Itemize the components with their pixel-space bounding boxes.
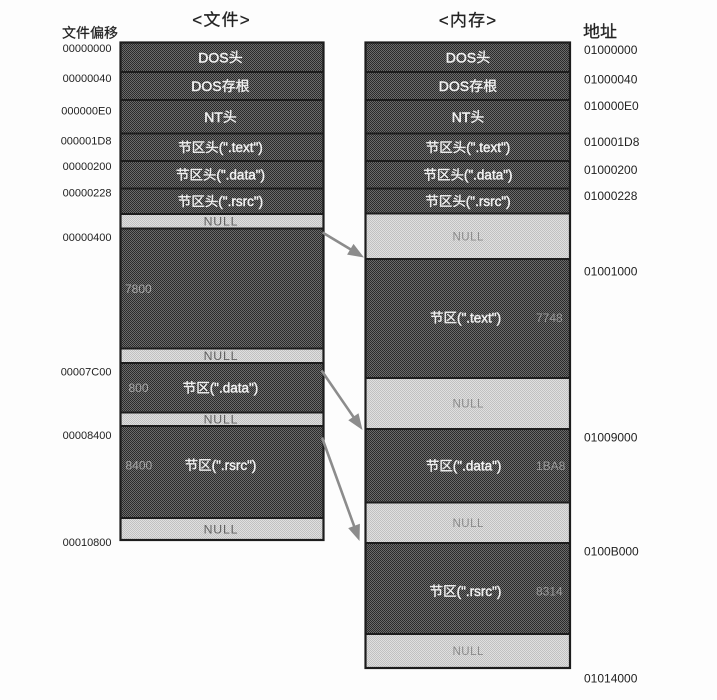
svg-text:DOS: DOS [446,49,476,65]
svg-text:(".rsrc"): (".rsrc") [212,458,257,473]
svg-text:(".data"): (".data") [464,168,513,183]
svg-text:01000228: 01000228 [584,189,638,203]
svg-text:NT: NT [204,109,223,125]
svg-text:01000040: 01000040 [584,72,638,86]
svg-text:NULL: NULL [453,231,485,243]
svg-text:NULL: NULL [204,413,239,427]
svg-text:00010800: 00010800 [63,537,112,549]
svg-text:(".rsrc"): (".rsrc") [218,194,263,209]
svg-text:NULL: NULL [453,646,485,658]
svg-text:DOS: DOS [439,78,469,94]
svg-text:00007C00: 00007C00 [61,367,112,379]
svg-text:010000E0: 010000E0 [584,99,639,113]
svg-text:NULL: NULL [204,215,239,229]
svg-text:NULL: NULL [204,522,239,536]
svg-text:00000228: 00000228 [63,188,112,200]
svg-text:01000200: 01000200 [584,163,638,177]
svg-text:<: < [192,11,203,30]
svg-text:00008400: 00008400 [63,430,112,442]
svg-text:>: > [486,11,497,30]
svg-text:NULL: NULL [204,349,239,363]
svg-text:00000200: 00000200 [63,161,112,173]
svg-text:8314: 8314 [536,584,563,598]
svg-text:DOS: DOS [191,78,221,94]
svg-text:01009000: 01009000 [584,430,638,444]
svg-text:7748: 7748 [536,311,563,325]
svg-text:(".data"): (".data") [210,381,259,396]
svg-text:7800: 7800 [125,282,152,296]
svg-text:>: > [240,11,251,30]
svg-text:DOS: DOS [198,49,228,65]
svg-text:1BA8: 1BA8 [536,459,566,473]
svg-text:NULL: NULL [453,518,485,530]
svg-text:00000000: 00000000 [63,43,112,55]
svg-text:(".data"): (".data") [453,459,502,474]
svg-text:(".text"): (".text") [457,310,501,325]
svg-text:010001D8: 010001D8 [584,135,640,149]
svg-text:(".data"): (".data") [216,168,265,183]
svg-text:<: < [439,11,450,30]
svg-text:00000040: 00000040 [63,73,112,85]
svg-text:000001D8: 000001D8 [61,136,112,148]
svg-text:01001000: 01001000 [584,264,638,278]
svg-text:0100B000: 0100B000 [584,544,639,558]
svg-text:01000000: 01000000 [584,43,638,57]
svg-text:(".text"): (".text") [466,140,510,155]
svg-text:800: 800 [129,381,149,395]
svg-text:NULL: NULL [453,399,485,411]
svg-text:NT: NT [452,109,471,125]
svg-text:01014000: 01014000 [584,671,638,685]
svg-text:000000E0: 000000E0 [61,106,111,118]
svg-text:(".text"): (".text") [219,140,263,155]
svg-text:00000400: 00000400 [63,232,112,244]
svg-text:8400: 8400 [126,458,153,472]
svg-text:(".rsrc"): (".rsrc") [457,584,502,599]
svg-text:(".rsrc"): (".rsrc") [466,194,511,209]
